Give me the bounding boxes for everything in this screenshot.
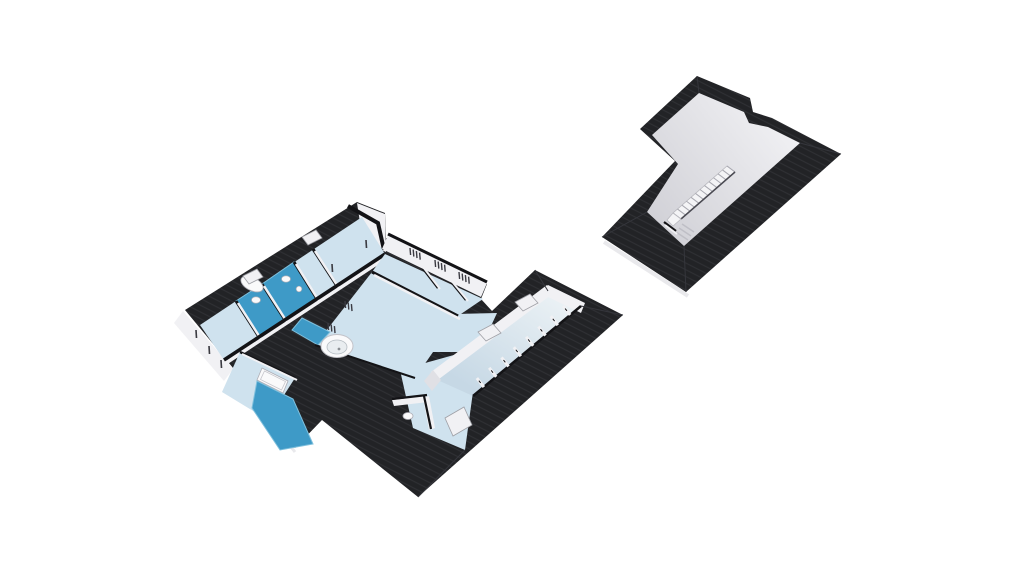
attic-structure: [602, 76, 841, 296]
floorplan-render-canvas: [0, 0, 1024, 576]
window-slit: [435, 260, 436, 267]
jacuzzi-drain: [338, 348, 341, 351]
floorplan-svg: [0, 0, 1024, 576]
window-slit: [348, 303, 349, 310]
window-slit: [416, 251, 417, 258]
window-slit: [209, 346, 210, 354]
window-slit: [465, 275, 466, 282]
sink: [296, 286, 302, 292]
window-slit: [438, 262, 439, 269]
toilet: [282, 276, 291, 282]
main-structure: [174, 202, 623, 497]
window-slit: [420, 253, 421, 260]
window-slit: [366, 240, 367, 248]
window-slit: [351, 304, 352, 311]
window-slit: [410, 248, 411, 255]
window-slit: [413, 250, 414, 257]
window-slit: [196, 330, 197, 338]
window-slit: [221, 360, 222, 368]
window-slit: [334, 326, 335, 333]
jacuzzi-basin: [327, 340, 347, 354]
window-slit: [328, 323, 329, 330]
window-slit: [459, 272, 460, 279]
toilet: [252, 297, 261, 303]
window-slit: [469, 277, 470, 284]
window-slit: [462, 274, 463, 281]
window-slit: [332, 264, 333, 272]
window-slit: [331, 325, 332, 332]
closet-seat: [403, 413, 413, 420]
window-slit: [445, 265, 446, 272]
window-slit: [441, 263, 442, 270]
window-slit: [345, 301, 346, 308]
